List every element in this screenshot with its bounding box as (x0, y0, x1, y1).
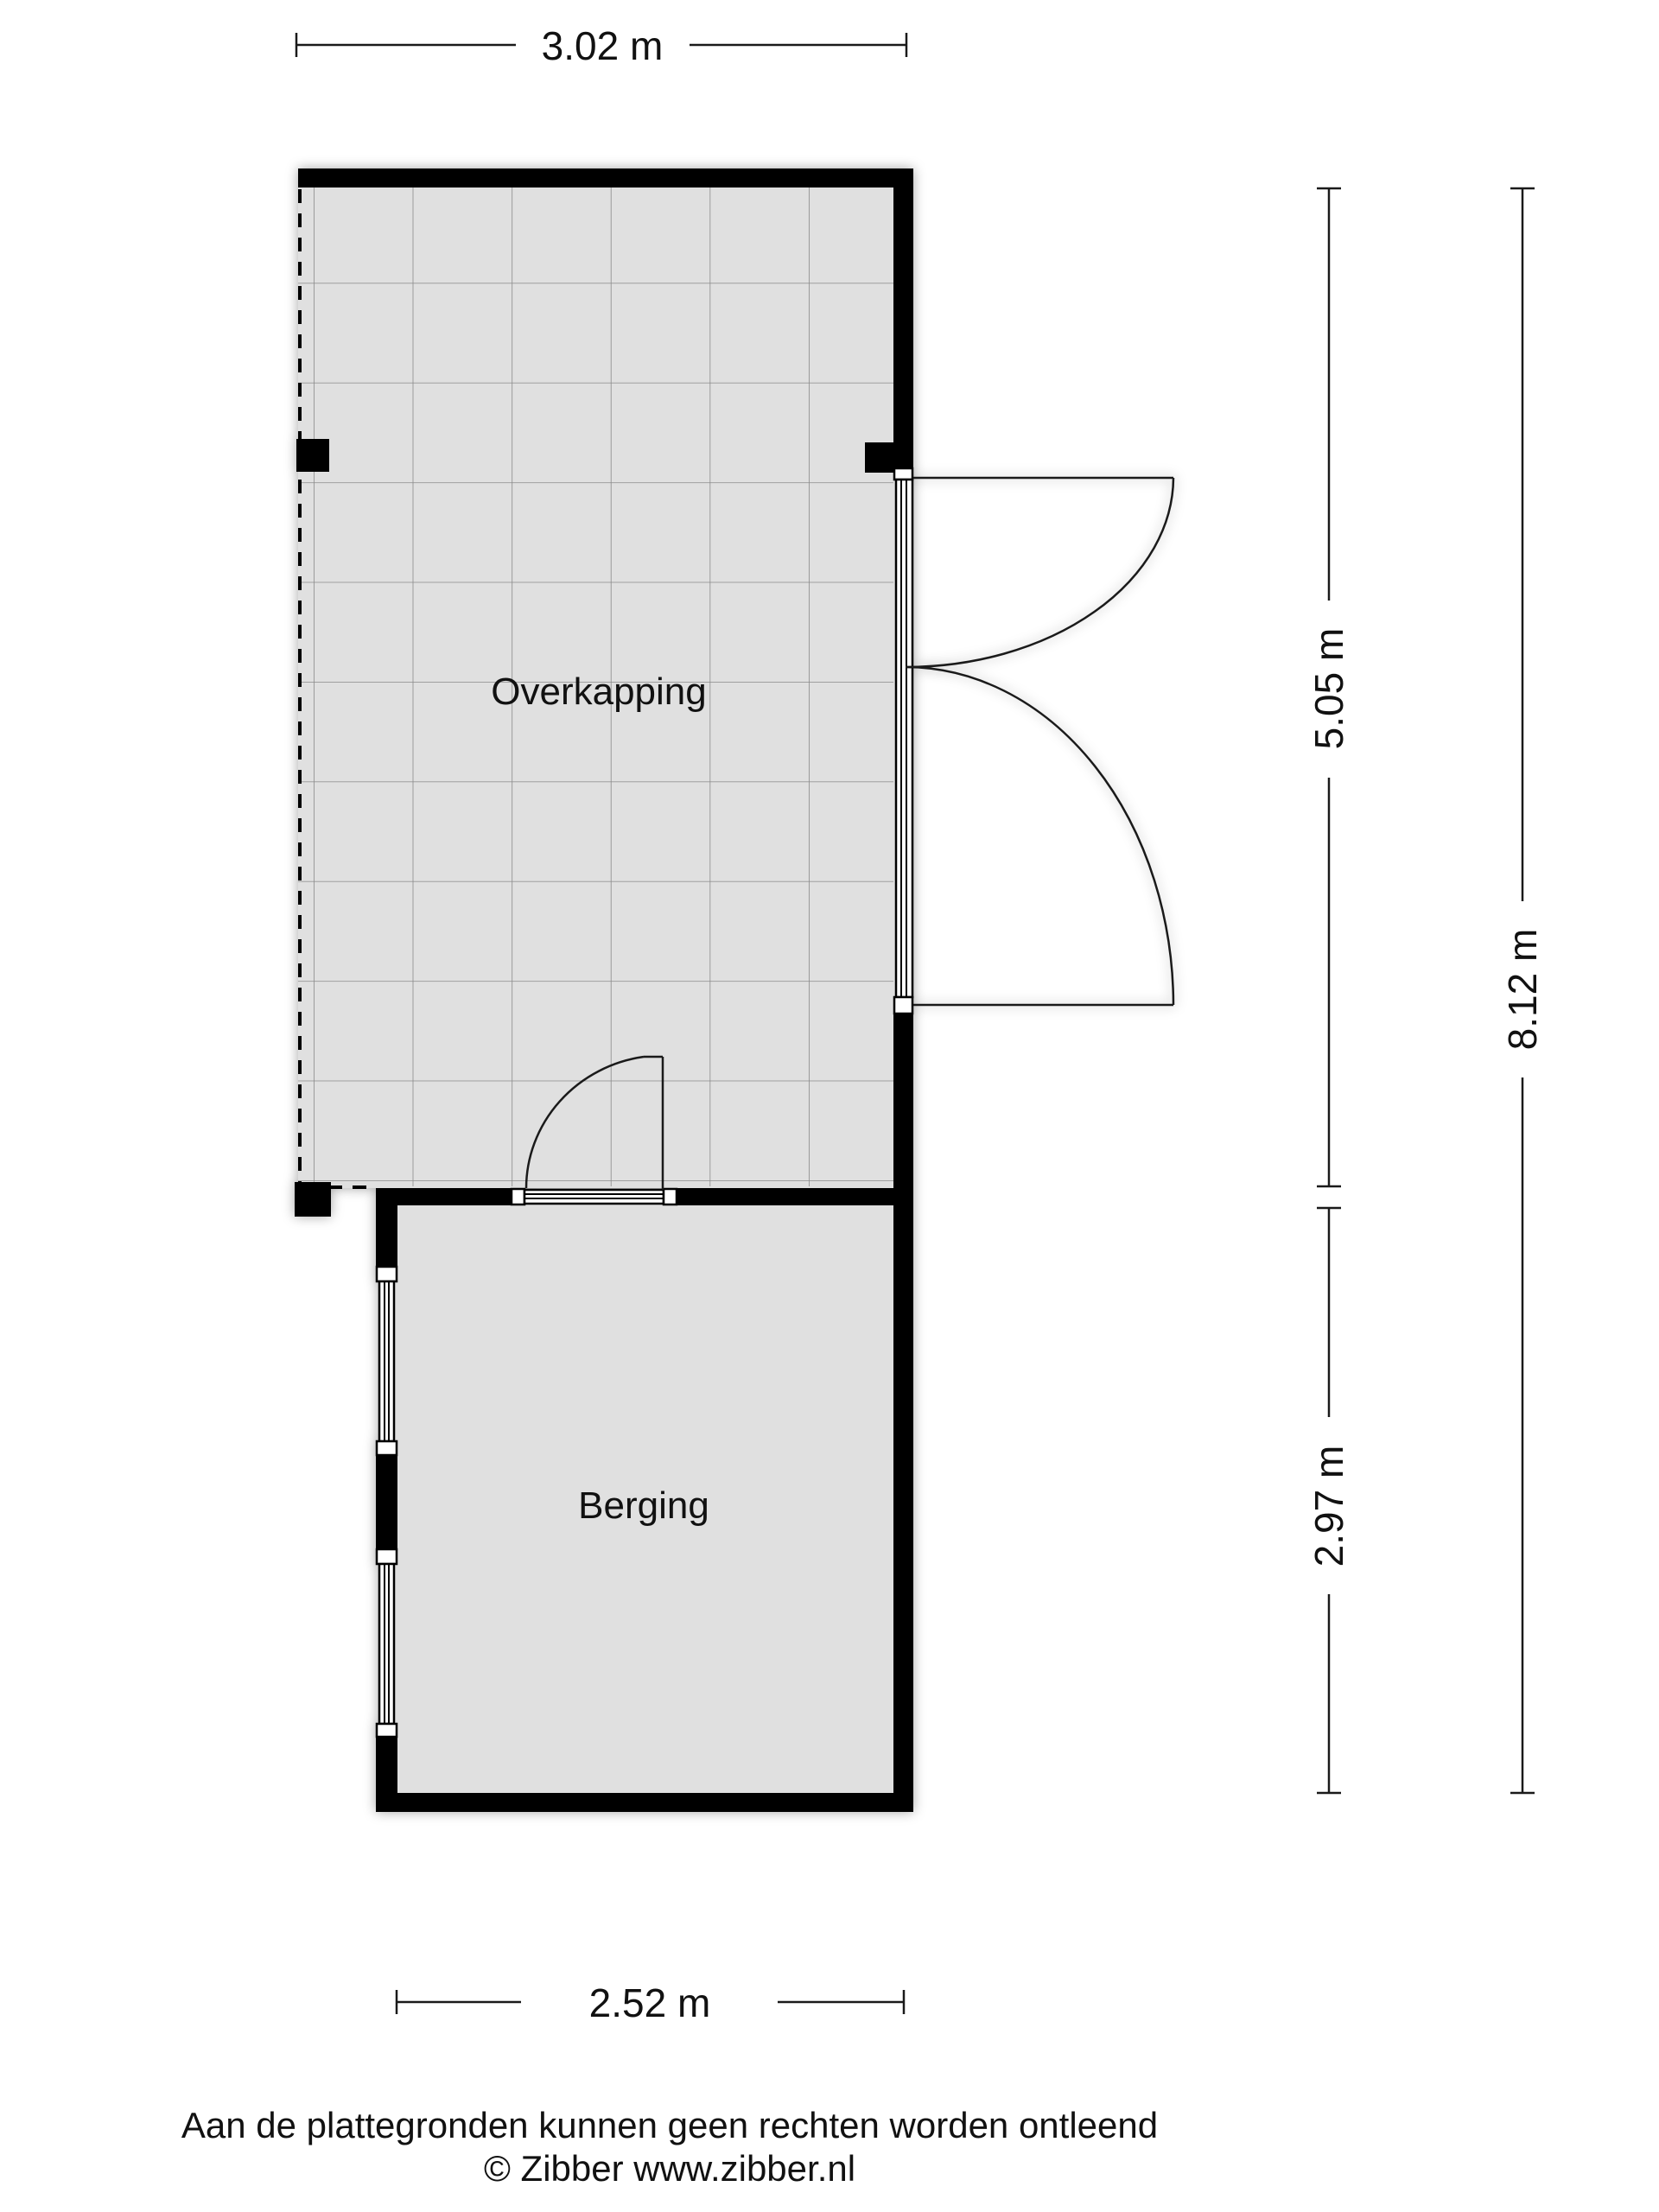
window-berging-lower (377, 1549, 397, 1737)
french-door-track (896, 480, 912, 997)
wall-berging-left-upper (376, 1188, 397, 1267)
dimension-label-bottom: 2.52 m (589, 1980, 711, 2025)
footer-copyright: © Zibber www.zibber.nl (484, 2148, 855, 2189)
french-door-swing-arc-top (906, 478, 1173, 667)
window-frame (377, 1724, 397, 1737)
dimension-right-inner-upper: 5.05 m (1306, 188, 1351, 1186)
room-label-overkapping: Overkapping (491, 671, 706, 713)
dimension-top: 3.02 m (296, 23, 906, 68)
french-door-frame-bottom (894, 997, 912, 1014)
dimension-label-right-upper: 5.05 m (1306, 628, 1351, 750)
window-frame (377, 1441, 397, 1455)
wall-berging-bottom (376, 1793, 913, 1812)
dimension-label-right-lower: 2.97 m (1306, 1446, 1351, 1567)
wall-right-lower (893, 1014, 913, 1812)
dimension-right-outer: 8.12 m (1500, 188, 1545, 1793)
window-frame (377, 1267, 397, 1281)
window-glazing (379, 1564, 394, 1724)
building: Overkapping Berging (295, 168, 1173, 1812)
dimension-label-right-outer: 8.12 m (1500, 929, 1545, 1051)
window-berging-upper (377, 1267, 397, 1455)
window-frame (377, 1549, 397, 1564)
wall-berging-top-right (677, 1188, 913, 1205)
post-left-bottom (295, 1182, 331, 1217)
room-label-berging: Berging (578, 1484, 709, 1527)
interior-door-frame-right (664, 1189, 677, 1205)
dimension-bottom: 2.52 m (397, 1980, 904, 2025)
dimension-right-inner-lower: 2.97 m (1306, 1208, 1351, 1793)
french-door (894, 468, 1173, 1014)
french-door-swing-arc-bottom (906, 667, 1173, 1005)
window-glazing (379, 1281, 394, 1441)
wall-berging-left-middle (376, 1455, 397, 1549)
interior-door-frame-left (512, 1189, 524, 1205)
post-left-top (296, 439, 329, 472)
interior-door-track (524, 1190, 664, 1204)
floorplan-page: Overkapping Berging 3.02 m 5.05 m 2.97 m… (0, 0, 1659, 2212)
floorplan-svg: Overkapping Berging 3.02 m 5.05 m 2.97 m… (0, 0, 1659, 2212)
french-door-frame-top (894, 468, 912, 480)
footer-disclaimer: Aan de plattegronden kunnen geen rechten… (181, 2105, 1158, 2145)
wall-overkapping-right-upper (893, 168, 913, 469)
dimension-label-top: 3.02 m (542, 23, 664, 68)
wall-overkapping-top (298, 168, 913, 188)
